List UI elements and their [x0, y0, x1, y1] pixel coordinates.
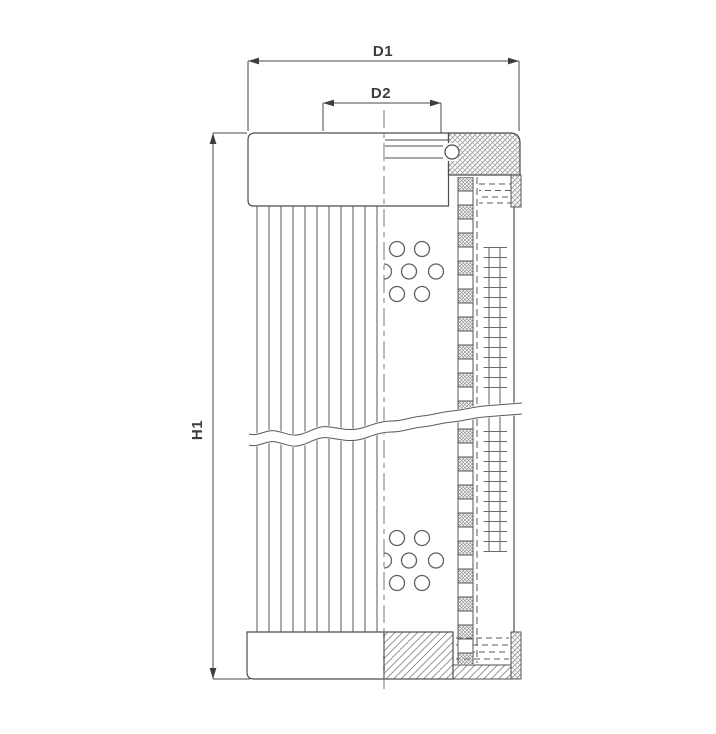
media-end-top	[479, 184, 511, 203]
perforation-holes-lower	[384, 531, 444, 591]
arrowhead-right-icon	[508, 58, 519, 65]
arrowhead-left-icon	[248, 58, 259, 65]
bottom-end-cap	[247, 632, 384, 679]
arrowhead-left-icon	[323, 100, 334, 107]
outer-shell-section-top	[511, 175, 521, 207]
drawing-canvas: D1 D2 H1	[0, 0, 716, 734]
pleated-media	[257, 206, 377, 632]
break-lines	[249, 403, 522, 446]
arrowhead-up-icon	[210, 133, 217, 144]
dimension-label-d2: D2	[371, 85, 391, 102]
dimension-h1	[210, 133, 250, 679]
half-hole	[384, 553, 392, 568]
outer-shell-section-bottom	[511, 632, 521, 679]
half-hole	[384, 264, 392, 279]
dimension-label-h1: H1	[189, 420, 206, 440]
support-mesh	[484, 247, 508, 552]
arrowhead-down-icon	[210, 668, 217, 679]
top-end-cap	[248, 133, 449, 206]
bottom-end-cap-section	[384, 632, 453, 679]
break-mask	[249, 409, 522, 441]
o-ring-icon	[445, 145, 459, 159]
dimension-label-d1: D1	[373, 43, 393, 60]
arrowhead-right-icon	[430, 100, 441, 107]
filter-element-technical-drawing: D1 D2 H1	[0, 0, 716, 734]
bottom-end-cap-section-strip	[453, 665, 511, 679]
perforation-holes-upper	[384, 242, 444, 302]
